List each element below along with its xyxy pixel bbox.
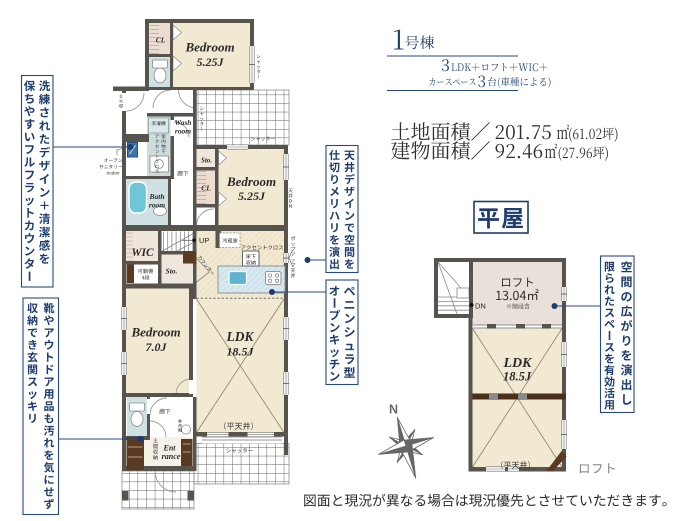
svg-text:CL: CL xyxy=(156,36,166,45)
svg-text:CL: CL xyxy=(201,184,211,193)
svg-text:UP: UP xyxy=(199,236,209,245)
svg-text:Bedroom: Bedroom xyxy=(130,325,180,340)
svg-text:5.25J: 5.25J xyxy=(238,189,266,203)
svg-text:LDK: LDK xyxy=(226,329,255,344)
svg-text:Bedroom: Bedroom xyxy=(184,40,234,55)
svg-text:18.5J: 18.5J xyxy=(227,345,255,359)
svg-text:Bedroom: Bedroom xyxy=(226,174,276,189)
svg-text:Sto.: Sto. xyxy=(166,267,178,276)
svg-text:WIC: WIC xyxy=(131,247,154,259)
svg-text:N: N xyxy=(389,403,398,417)
svg-text:room: room xyxy=(149,201,165,210)
svg-text:DN: DN xyxy=(475,302,486,311)
svg-text:Sto.: Sto. xyxy=(201,157,212,165)
svg-text:5.25J: 5.25J xyxy=(197,55,225,69)
svg-text:18.5J: 18.5J xyxy=(503,370,532,384)
svg-text:room: room xyxy=(175,127,191,136)
svg-text:rance: rance xyxy=(162,452,181,461)
svg-text:7.0J: 7.0J xyxy=(146,340,168,354)
svg-text:irodori: irodori xyxy=(107,171,120,176)
